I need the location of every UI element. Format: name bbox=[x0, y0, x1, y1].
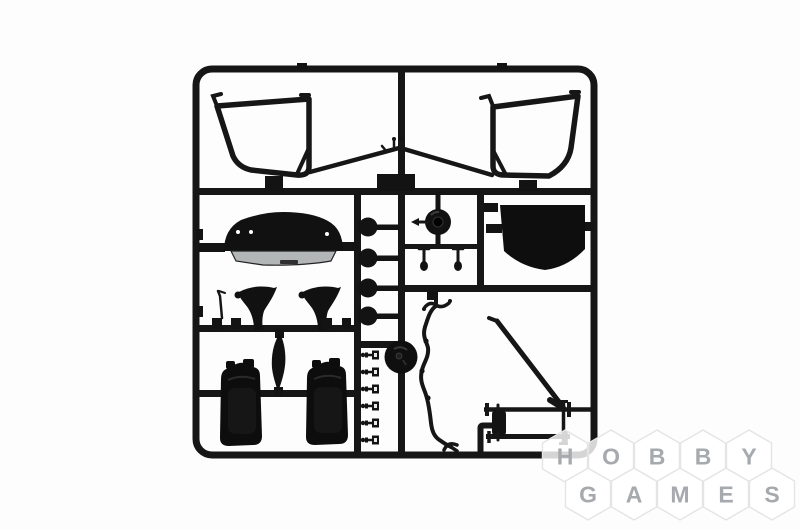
sprue-photo: H O B B Y G A M bbox=[0, 0, 800, 530]
seat-left-part bbox=[220, 359, 262, 446]
spare-wheel-part bbox=[385, 341, 418, 374]
watermark-letter: H bbox=[557, 444, 574, 470]
watermark-letter: O bbox=[602, 444, 620, 470]
product-photo: H O B B Y G A M bbox=[0, 0, 800, 530]
watermark-letter: G bbox=[579, 482, 597, 508]
watermark-letter: E bbox=[718, 482, 733, 508]
seat-right-part bbox=[306, 358, 348, 445]
watermark-letter: Y bbox=[741, 444, 756, 470]
watermark-letter: B bbox=[695, 444, 712, 470]
watermark-letter: A bbox=[626, 482, 643, 508]
watermark-letter: B bbox=[649, 444, 666, 470]
hobbygames-watermark: H O B B Y G A M bbox=[543, 430, 795, 520]
watermark-letter: S bbox=[764, 482, 779, 508]
watermark-letter: M bbox=[670, 482, 689, 508]
